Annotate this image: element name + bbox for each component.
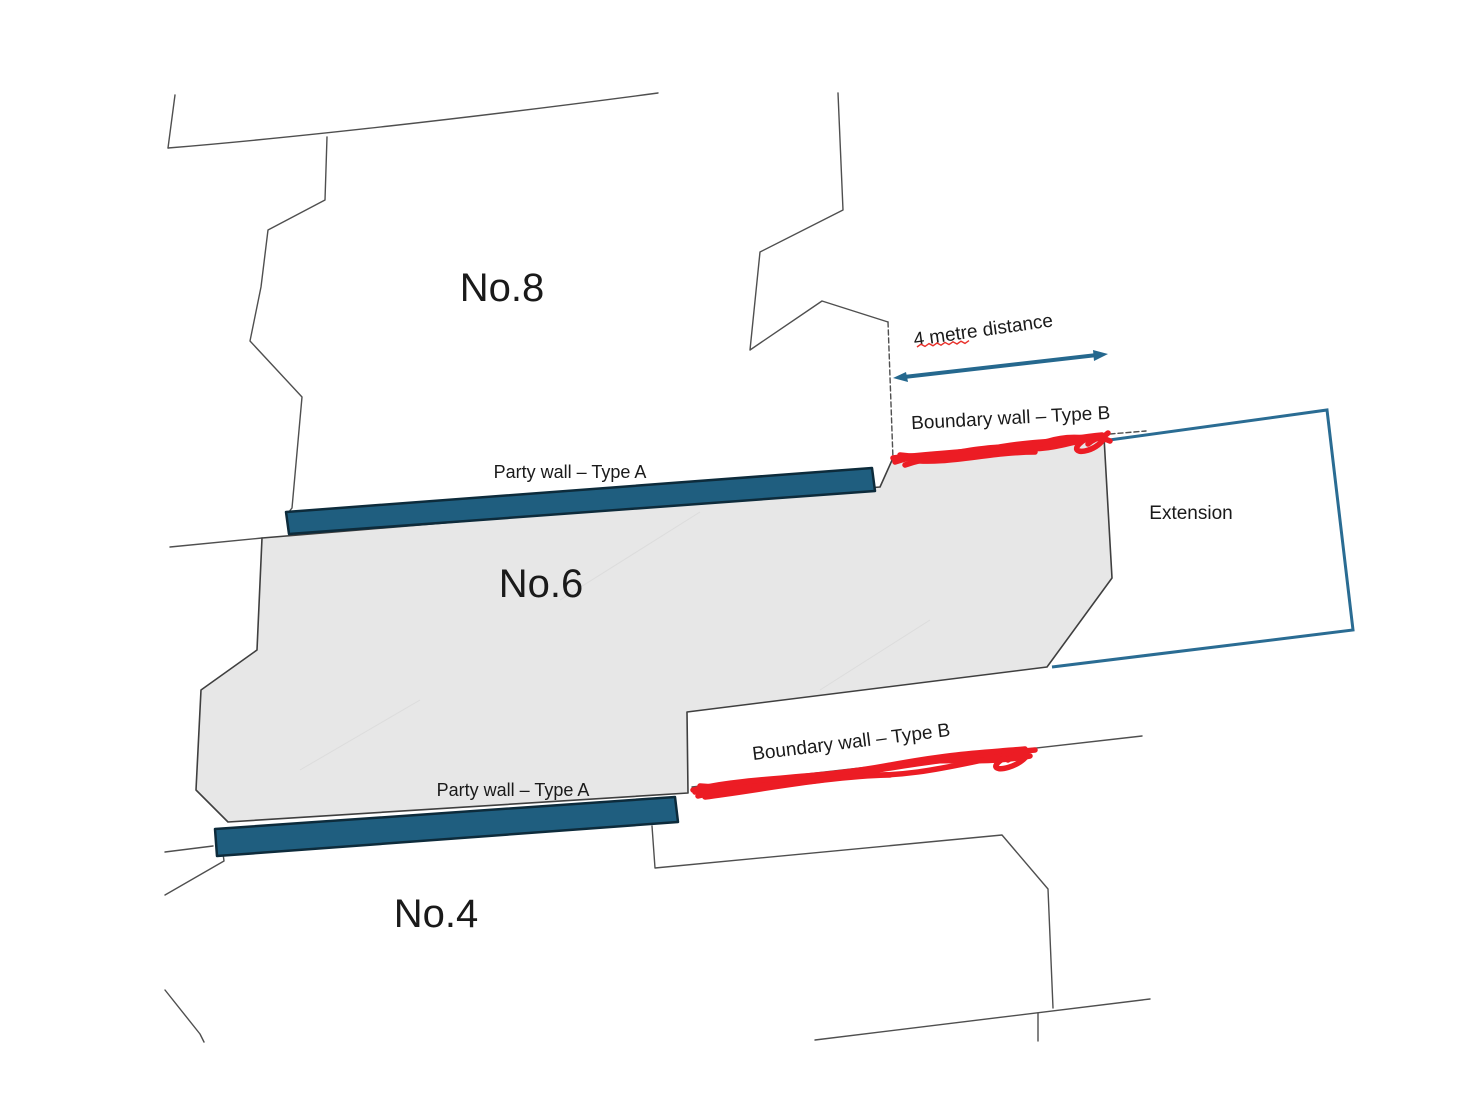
no8-rear-garden-corner-line	[168, 95, 175, 148]
boundary-wall-top-label: Boundary wall – Type B	[911, 403, 1111, 434]
no8-rear-garden-boundary-line	[168, 93, 658, 148]
distance-arrow-head-left-icon	[893, 372, 908, 382]
no4-left-boundary-lines	[165, 846, 224, 895]
no4-building-outline	[652, 826, 1053, 1008]
no4-lower-left-boundary-line	[165, 990, 204, 1042]
site-plan-diagram: No.8 No.6 No.4 Party wall – Type A Party…	[0, 0, 1463, 1105]
no6-left-boundary-line	[170, 538, 262, 547]
house-no4-label: No.4	[394, 892, 479, 936]
party-wall-top-label: Party wall – Type A	[494, 462, 647, 482]
no8-building-outline	[250, 137, 327, 513]
extension-label: Extension	[1149, 503, 1232, 524]
no8-rear-corner-dashed-line	[888, 322, 893, 459]
boundary-dashed-segment	[1110, 431, 1146, 434]
distance-arrow	[893, 350, 1108, 382]
distance-arrow-line	[904, 355, 1097, 377]
no8-right-plot-outline	[750, 93, 888, 350]
distance-arrow-head-right-icon	[1093, 350, 1108, 361]
house-no6-label: No.6	[499, 562, 584, 606]
party-wall-bottom-label: Party wall – Type A	[437, 780, 590, 800]
site-plan-svg: No.8 No.6 No.4 Party wall – Type A Party…	[0, 0, 1463, 1105]
house-no8-label: No.8	[460, 266, 545, 310]
boundary-wall-bottom-scribble	[693, 749, 1035, 797]
street-edge-line	[815, 999, 1150, 1040]
